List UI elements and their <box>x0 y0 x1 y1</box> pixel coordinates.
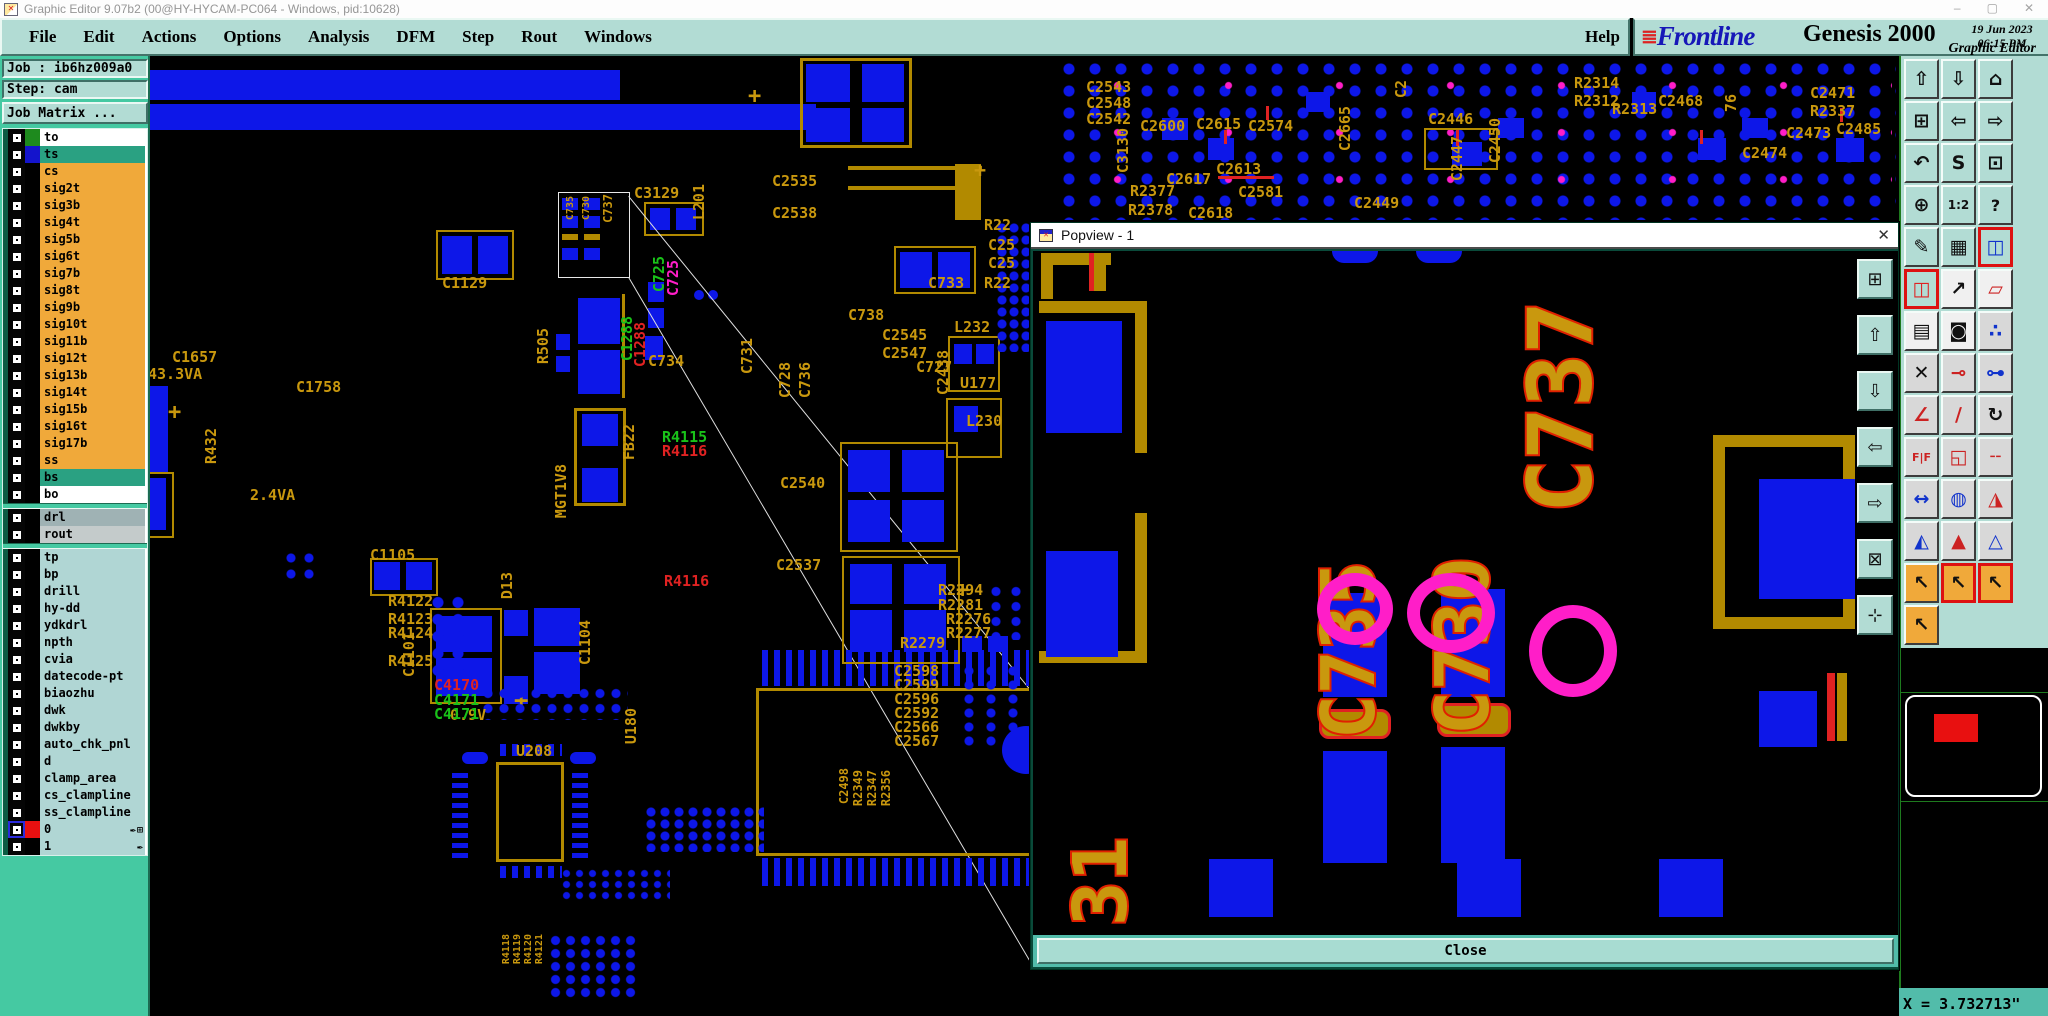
layer-name: 1✒ <box>40 838 147 855</box>
layer-name: sig4t <box>40 214 147 231</box>
pcb-pad <box>1441 747 1505 863</box>
pan-right-button[interactable]: ⇨ <box>1978 101 2013 141</box>
layer-checkbox[interactable] <box>8 146 25 163</box>
pcb-label: C1657 <box>172 350 217 366</box>
pcb-pad <box>1416 251 1462 263</box>
pcb-pad <box>1209 859 1273 917</box>
layer-row-d[interactable]: d <box>3 753 147 770</box>
layer-name: sig6t <box>40 248 147 265</box>
grid-toggle-button[interactable]: ▦ <box>1941 227 1976 267</box>
menu-edit[interactable]: Edit <box>83 27 114 47</box>
layer-color-swatch[interactable] <box>25 566 40 583</box>
layer-checkbox[interactable] <box>8 486 25 503</box>
layer-name: sig7b <box>40 265 147 282</box>
layer-row-rout[interactable]: rout <box>3 526 147 543</box>
maximize-button[interactable]: ▢ <box>1987 1 1998 15</box>
pcb-pad <box>1836 138 1864 162</box>
layer-name: rout <box>40 526 147 543</box>
pcb-label: U180 <box>624 708 640 744</box>
layer-color-swatch[interactable] <box>25 668 40 685</box>
shape-tools-button[interactable]: ◍ <box>1941 479 1976 519</box>
layer-checkbox[interactable] <box>8 384 25 401</box>
layer-color-swatch[interactable] <box>25 163 40 180</box>
close-button[interactable]: ✕ <box>2024 1 2034 15</box>
layer-name: sig2t <box>40 180 147 197</box>
pcb-pad <box>570 752 596 764</box>
pcb-pad <box>1759 691 1817 747</box>
pcb-pad <box>1039 301 1147 313</box>
layer-checkbox[interactable] <box>8 435 25 452</box>
layer-row-ts[interactable]: ts <box>3 146 147 163</box>
title-bar: ✕ Graphic Editor 9.07b2 (00@HY-HYCAM-PC0… <box>0 0 2048 18</box>
layer-color-swatch[interactable] <box>25 509 40 526</box>
popview-pan-left-button[interactable]: ⇦ <box>1857 427 1893 467</box>
layer-row-sig7b[interactable]: sig7b <box>3 265 147 282</box>
popview-pan-right-button[interactable]: ⇨ <box>1857 483 1893 523</box>
layer-checkbox[interactable] <box>8 367 25 384</box>
layer-checkbox[interactable] <box>8 583 25 600</box>
popview-close-button[interactable]: Close <box>1037 938 1894 964</box>
layer-row-clamp_area[interactable]: clamp_area <box>3 770 147 787</box>
zoom-center-button[interactable]: ⊕ <box>1904 185 1939 225</box>
pcb-label: C25 <box>988 238 1015 254</box>
layer-color-swatch[interactable] <box>25 231 40 248</box>
pcb-pad <box>848 500 890 542</box>
layer-row-sig16t[interactable]: sig16t <box>3 418 147 435</box>
layer-row-sig8t[interactable]: sig8t <box>3 282 147 299</box>
layer-row-sig4t[interactable]: sig4t <box>3 214 147 231</box>
layer-checkbox[interactable] <box>8 350 25 367</box>
layer-color-swatch[interactable] <box>25 685 40 702</box>
pcb-pad <box>504 610 528 636</box>
layer-checkbox[interactable] <box>8 838 25 855</box>
layer-checkbox[interactable] <box>8 248 25 265</box>
pcb-pad <box>862 108 904 142</box>
layer-color-swatch[interactable] <box>25 787 40 804</box>
pcb-label: 76 <box>1724 94 1740 112</box>
layer-checkbox[interactable] <box>8 333 25 350</box>
pcb-pad <box>150 104 816 130</box>
layer-row-sig13b[interactable]: sig13b <box>3 367 147 384</box>
pcb-label: R2356 <box>880 770 893 806</box>
pan-left-button[interactable]: ⇦ <box>1941 101 1976 141</box>
pcb-label: C735 <box>566 196 577 220</box>
origin-set-button[interactable]: ◱ <box>1941 437 1976 477</box>
layer-checkbox[interactable] <box>8 702 25 719</box>
query-button[interactable]: ? <box>1978 185 2013 225</box>
zoom-fit-button[interactable]: ⊡ <box>1978 143 2013 183</box>
height-rule-4-button[interactable]: △ <box>1978 521 2013 561</box>
layer-color-swatch[interactable] <box>25 367 40 384</box>
slope-measure-button[interactable]: ∕ <box>1941 395 1976 435</box>
layer-row-npth[interactable]: npth <box>3 634 147 651</box>
layer-row-to[interactable]: to <box>3 129 147 146</box>
pcb-label: R2277 <box>946 626 991 642</box>
cursor-poly-select-button[interactable]: ↖ <box>1978 563 2013 603</box>
layer-row-cs[interactable]: cs <box>3 163 147 180</box>
mirror-button[interactable]: F|F <box>1904 437 1939 477</box>
layer-checkbox[interactable] <box>8 770 25 787</box>
menu-bar: FileEditActionsOptionsAnalysisDFMStepRou… <box>0 18 1630 56</box>
menu-help[interactable]: Help <box>1585 27 1620 47</box>
layer-row-sig15b[interactable]: sig15b <box>3 401 147 418</box>
menu-actions[interactable]: Actions <box>142 27 197 47</box>
serpentine-route-button[interactable]: S <box>1941 143 1976 183</box>
pcb-pad <box>534 608 580 646</box>
pcb-label: C2535 <box>772 174 817 190</box>
via-grid <box>480 686 628 720</box>
layer-row-sig9b[interactable]: sig9b <box>3 299 147 316</box>
layer-color-swatch[interactable] <box>25 418 40 435</box>
layer-checkbox[interactable] <box>8 214 25 231</box>
pcb-label: C2450 <box>1488 118 1504 163</box>
navigator-view-rect[interactable] <box>1934 714 1978 742</box>
layer-name: datecode-pt <box>40 668 147 685</box>
layer-color-swatch[interactable] <box>25 401 40 418</box>
layer-row-hy-dd[interactable]: hy-dd <box>3 600 147 617</box>
layer-checkbox[interactable] <box>8 651 25 668</box>
layer-color-swatch[interactable] <box>25 146 40 163</box>
layer-color-swatch[interactable] <box>25 129 40 146</box>
layer-color-swatch[interactable] <box>25 770 40 787</box>
pcb-label: 2.4VA <box>250 488 295 504</box>
menu-step[interactable]: Step <box>462 27 494 47</box>
layer-checkbox[interactable] <box>8 821 25 838</box>
layer-row-tp[interactable]: tp <box>3 549 147 566</box>
copy-to-layer-button[interactable]: ⊸ <box>1941 353 1976 393</box>
pcb-label: C738 <box>848 308 884 324</box>
pcb-pad <box>584 234 600 240</box>
popview-close-x-button[interactable]: ✕ <box>1877 226 1890 244</box>
pcb-pad <box>1457 859 1521 917</box>
layer-name: to <box>40 129 147 146</box>
layer-checkbox[interactable] <box>8 452 25 469</box>
via-grid <box>958 664 1028 748</box>
layer-checkbox[interactable] <box>8 469 25 486</box>
popview-title: Popview - 1 <box>1061 227 1134 243</box>
layer-color-swatch[interactable] <box>25 838 40 855</box>
layer-row-sig11b[interactable]: sig11b <box>3 333 147 350</box>
layer-row-bo[interactable]: bo <box>3 486 147 503</box>
pcb-pad <box>1700 130 1703 144</box>
pcb-label: C2574 <box>1248 119 1293 135</box>
popview-canvas[interactable]: C735C730C73731⊞⇧⇩⇦⇨⊠⊹ <box>1033 251 1898 935</box>
via-grid <box>986 584 1026 640</box>
layer-color-swatch[interactable] <box>25 526 40 543</box>
layer-checkbox[interactable] <box>8 526 25 543</box>
zoom-ratio-button[interactable]: 1:2 <box>1941 185 1976 225</box>
height-rule-2-button[interactable]: ◭ <box>1904 521 1939 561</box>
cursor-select-button[interactable]: ↖ <box>1904 563 1939 603</box>
divider <box>1901 801 2048 802</box>
split-view-xy-button[interactable]: ⊞ <box>1904 101 1939 141</box>
layer-checkbox[interactable] <box>8 401 25 418</box>
dashed-line-button[interactable]: ╌ <box>1978 437 2013 477</box>
previous-view-button[interactable]: ↶ <box>1904 143 1939 183</box>
layer-name: drill <box>40 583 147 600</box>
layer-row-biaozhu[interactable]: biaozhu <box>3 685 147 702</box>
popview-title-bar[interactable]: ✕ Popview - 1 ✕ <box>1031 223 1898 249</box>
clip-up-button[interactable]: ⇧ <box>1904 59 1939 99</box>
layer-row-drl[interactable]: drl <box>3 509 147 526</box>
divider <box>1901 692 2048 693</box>
layer-display-2-button[interactable]: ◫ <box>1904 269 1939 309</box>
cursor-rect-select-button[interactable]: ↖ <box>1941 563 1976 603</box>
menu-windows[interactable]: Windows <box>584 27 652 47</box>
pcb-label: R2378 <box>1128 203 1173 219</box>
app-icon: ✕ <box>4 3 18 16</box>
sidebar: Job : ib6hz009a0 Step: cam Job Matrix ..… <box>0 56 150 1016</box>
pcb-label: R4118 <box>502 934 513 964</box>
layer-name: sig15b <box>40 401 147 418</box>
pcb-label: C2545 <box>882 328 927 344</box>
layer-row-1[interactable]: 1✒ <box>3 838 147 855</box>
layer-row-sig10t[interactable]: sig10t <box>3 316 147 333</box>
layer-color-swatch[interactable] <box>25 719 40 736</box>
ic-pin-row <box>762 858 1056 886</box>
layer-color-swatch[interactable] <box>25 384 40 401</box>
pcb-label-zoomed: 31 <box>1067 837 1135 926</box>
layer-row-sig17b[interactable]: sig17b <box>3 435 147 452</box>
pcb-label: R4116 <box>662 444 707 460</box>
layer-row-sig12t[interactable]: sig12t <box>3 350 147 367</box>
layer-color-swatch[interactable] <box>25 634 40 651</box>
layer-checkbox[interactable] <box>8 180 25 197</box>
pcb-label: C1105 <box>370 548 415 564</box>
clip-down-button[interactable]: ⇩ <box>1941 59 1976 99</box>
setup-tools-button[interactable]: ✎ <box>1904 227 1939 267</box>
pcb-pad <box>582 468 618 502</box>
popview-pan-down-button[interactable]: ⇩ <box>1857 371 1893 411</box>
pcb-label: C3129 <box>634 186 679 202</box>
menu-file[interactable]: File <box>29 27 56 47</box>
angle-measure-button[interactable]: ∠ <box>1904 395 1939 435</box>
pcb-mark: + <box>748 84 761 109</box>
layer-checkbox[interactable] <box>8 163 25 180</box>
pcb-pad <box>848 450 890 492</box>
layer-color-swatch[interactable] <box>25 214 40 231</box>
pcb-mark: + <box>974 158 986 182</box>
highlight-ring <box>1407 573 1495 653</box>
net-select-button[interactable]: ∴ <box>1978 311 2013 351</box>
layer-checkbox[interactable] <box>8 787 25 804</box>
layer-color-swatch[interactable] <box>25 702 40 719</box>
layer-row-sig3b[interactable]: sig3b <box>3 197 147 214</box>
layer-name: tp <box>40 549 147 566</box>
layer-color-swatch[interactable] <box>25 486 40 503</box>
overview-navigator[interactable] <box>1905 695 2042 797</box>
ic-pin-row <box>452 768 468 858</box>
pcb-label: R4125 <box>388 654 433 670</box>
layer-checkbox[interactable] <box>8 753 25 770</box>
layer-row-ss_clampline[interactable]: ss_clampline <box>3 804 147 821</box>
layer-color-swatch[interactable] <box>25 350 40 367</box>
layer-checkbox[interactable] <box>8 282 25 299</box>
layer-checkbox[interactable] <box>8 299 25 316</box>
layer-checkbox[interactable] <box>8 316 25 333</box>
layer-checkbox[interactable] <box>8 509 25 526</box>
popview-pan-up-button[interactable]: ⇧ <box>1857 315 1893 355</box>
pcb-pad <box>578 350 620 394</box>
layer-row-drill[interactable]: drill <box>3 583 147 600</box>
layer-row-cs_clampline[interactable]: cs_clampline <box>3 787 147 804</box>
menu-analysis[interactable]: Analysis <box>308 27 369 47</box>
layer-color-swatch[interactable] <box>25 736 40 753</box>
layer-checkbox[interactable] <box>8 617 25 634</box>
pcb-pad <box>976 344 994 364</box>
pad-select-button[interactable]: ◙ <box>1941 311 1976 351</box>
pcb-label: C731 <box>740 338 756 374</box>
application-window: ✕ Graphic Editor 9.07b2 (00@HY-HYCAM-PC0… <box>0 0 2048 1016</box>
layer-row-sig14t[interactable]: sig14t <box>3 384 147 401</box>
select-move-button[interactable]: ↗ <box>1941 269 1976 309</box>
step-label: Step: cam <box>2 80 148 99</box>
layer-color-swatch[interactable] <box>25 469 40 486</box>
layer-color-swatch[interactable] <box>25 435 40 452</box>
pcb-pad <box>150 386 168 472</box>
pcb-label: R2349 <box>852 770 865 806</box>
minimize-button[interactable]: – <box>1954 1 1961 15</box>
height-rule-1-button[interactable]: ◮ <box>1978 479 2013 519</box>
layer-name: dwk <box>40 702 147 719</box>
layer-color-swatch[interactable] <box>25 583 40 600</box>
pcb-label: C2538 <box>772 206 817 222</box>
layer-row-ss[interactable]: ss <box>3 452 147 469</box>
layer-row-ydkdrl[interactable]: ydkdrl <box>3 617 147 634</box>
layer-row-auto_chk_pnl[interactable]: auto_chk_pnl <box>3 736 147 753</box>
rotate-button[interactable]: ↻ <box>1978 395 2013 435</box>
home-view-button[interactable]: ⌂ <box>1978 59 2013 99</box>
pcb-label: R4119 <box>513 934 524 964</box>
layer-row-dwk[interactable]: dwk <box>3 702 147 719</box>
transform-button[interactable]: ▱ <box>1978 269 2013 309</box>
layer-row-sig6t[interactable]: sig6t <box>3 248 147 265</box>
layer-row-cvia[interactable]: cvia <box>3 651 147 668</box>
layer-checkbox[interactable] <box>8 668 25 685</box>
layer-color-swatch[interactable] <box>25 299 40 316</box>
layer-checkbox[interactable] <box>8 549 25 566</box>
layer-name: sig5b <box>40 231 147 248</box>
ruler-button[interactable]: ▤ <box>1904 311 1939 351</box>
pcb-label: C25 <box>988 256 1015 272</box>
layer-color-swatch[interactable] <box>25 753 40 770</box>
delete-button[interactable]: ✕ <box>1904 353 1939 393</box>
layer-checkbox[interactable] <box>8 197 25 214</box>
distance-measure-button[interactable]: ↔ <box>1904 479 1939 519</box>
pcb-label: C2438 <box>936 350 952 395</box>
pcb-pad <box>562 234 578 240</box>
pcb-label: R4121 <box>535 934 546 964</box>
layer-row-bs[interactable]: bs <box>3 469 147 486</box>
pcb-label: C737 <box>602 194 615 223</box>
layer-color-swatch[interactable] <box>25 248 40 265</box>
layer-color-swatch[interactable] <box>25 282 40 299</box>
pcb-label: C733 <box>928 276 964 292</box>
pcb-pad <box>150 478 166 530</box>
layer-color-swatch[interactable] <box>25 600 40 617</box>
menu-dfm[interactable]: DFM <box>396 27 435 47</box>
right-toolbar: ⇧⇩⌂⊞⇦⇨↶S⊡⊕1:2?✎▦◫◫↗▱▤◙∴✕⊸⊶∠∕↻F|F◱╌↔◍◮◭▲△… <box>1899 56 2048 988</box>
menu-options[interactable]: Options <box>223 27 281 47</box>
layer-checkbox[interactable] <box>8 685 25 702</box>
layer-checkbox[interactable] <box>8 600 25 617</box>
layer-color-swatch[interactable] <box>25 316 40 333</box>
pcb-pad <box>902 500 944 542</box>
layer-color-swatch[interactable] <box>25 197 40 214</box>
layer-row-sig2t[interactable]: sig2t <box>3 180 147 197</box>
height-rule-3-button[interactable]: ▲ <box>1941 521 1976 561</box>
layer-color-swatch[interactable] <box>25 617 40 634</box>
pcb-label: C2485 <box>1836 122 1881 138</box>
layer-color-swatch[interactable] <box>25 549 40 566</box>
layer-color-swatch[interactable] <box>25 821 40 838</box>
layer-row-dwkby[interactable]: dwkby <box>3 719 147 736</box>
pcb-label: C2498 <box>838 768 851 804</box>
popview-window-button[interactable]: ⊞ <box>1857 259 1893 299</box>
pcb-label: L232 <box>954 320 990 336</box>
layer-color-swatch[interactable] <box>25 452 40 469</box>
layer-color-swatch[interactable] <box>25 804 40 821</box>
menu-rout[interactable]: Rout <box>521 27 557 47</box>
pcb-pad <box>1208 138 1234 160</box>
layer-color-swatch[interactable] <box>25 180 40 197</box>
pcb-mark: + <box>168 400 181 425</box>
layer-checkbox[interactable] <box>8 719 25 736</box>
pcb-pad <box>862 64 904 102</box>
brand-panel: ≣Frontline Genesis 2000 19 Jun 202306:15… <box>1633 18 2048 56</box>
product-subtitle: Graphic Editor <box>1948 41 2036 57</box>
layer-active-icon: ✒ <box>137 839 144 855</box>
layer-checkbox[interactable] <box>8 634 25 651</box>
layer-color-swatch[interactable] <box>25 651 40 668</box>
pcb-label: C2446 <box>1428 112 1473 128</box>
cursor-net-select-button[interactable]: ↖ <box>1904 605 1939 645</box>
pcb-pad <box>556 334 570 350</box>
highlight-ring <box>1529 605 1617 697</box>
layer-checkbox[interactable] <box>8 129 25 146</box>
popview-zoom-box-button[interactable]: ⊠ <box>1857 539 1893 579</box>
layer-checkbox[interactable] <box>8 736 25 753</box>
highlight-ring <box>1317 573 1393 645</box>
layer-name: clamp_area <box>40 770 147 787</box>
pcb-label-zoomed: C737 <box>1521 301 1602 513</box>
layer-name: ts <box>40 146 147 163</box>
layer-checkbox[interactable] <box>8 265 25 282</box>
layer-checkbox[interactable] <box>8 804 25 821</box>
layer-row-datecode-pt[interactable]: datecode-pt <box>3 668 147 685</box>
layer-color-swatch[interactable] <box>25 265 40 282</box>
layer-checkbox[interactable] <box>8 231 25 248</box>
pcb-label: C2537 <box>776 558 821 574</box>
pcb-outline <box>496 762 564 862</box>
layer-row-sig5b[interactable]: sig5b <box>3 231 147 248</box>
layer-name: sig3b <box>40 197 147 214</box>
ic-pin-row <box>500 866 562 878</box>
layer-checkbox[interactable] <box>8 418 25 435</box>
layer-display-1-button[interactable]: ◫ <box>1978 227 2013 267</box>
layer-color-swatch[interactable] <box>25 333 40 350</box>
pcb-label: R2347 <box>866 770 879 806</box>
layer-row-bp[interactable]: bp <box>3 566 147 583</box>
pcb-label: R2313 <box>1612 102 1657 118</box>
pcb-label: C2547 <box>882 346 927 362</box>
popview-center-button[interactable]: ⊹ <box>1857 595 1893 635</box>
job-matrix-button[interactable]: Job Matrix ... <box>2 102 148 124</box>
layer-row-0[interactable]: 0✒⊞ <box>3 821 147 838</box>
logo-arrows-icon: ≣ <box>1641 26 1657 48</box>
move-to-layer-button[interactable]: ⊶ <box>1978 353 2013 393</box>
layer-checkbox[interactable] <box>8 566 25 583</box>
